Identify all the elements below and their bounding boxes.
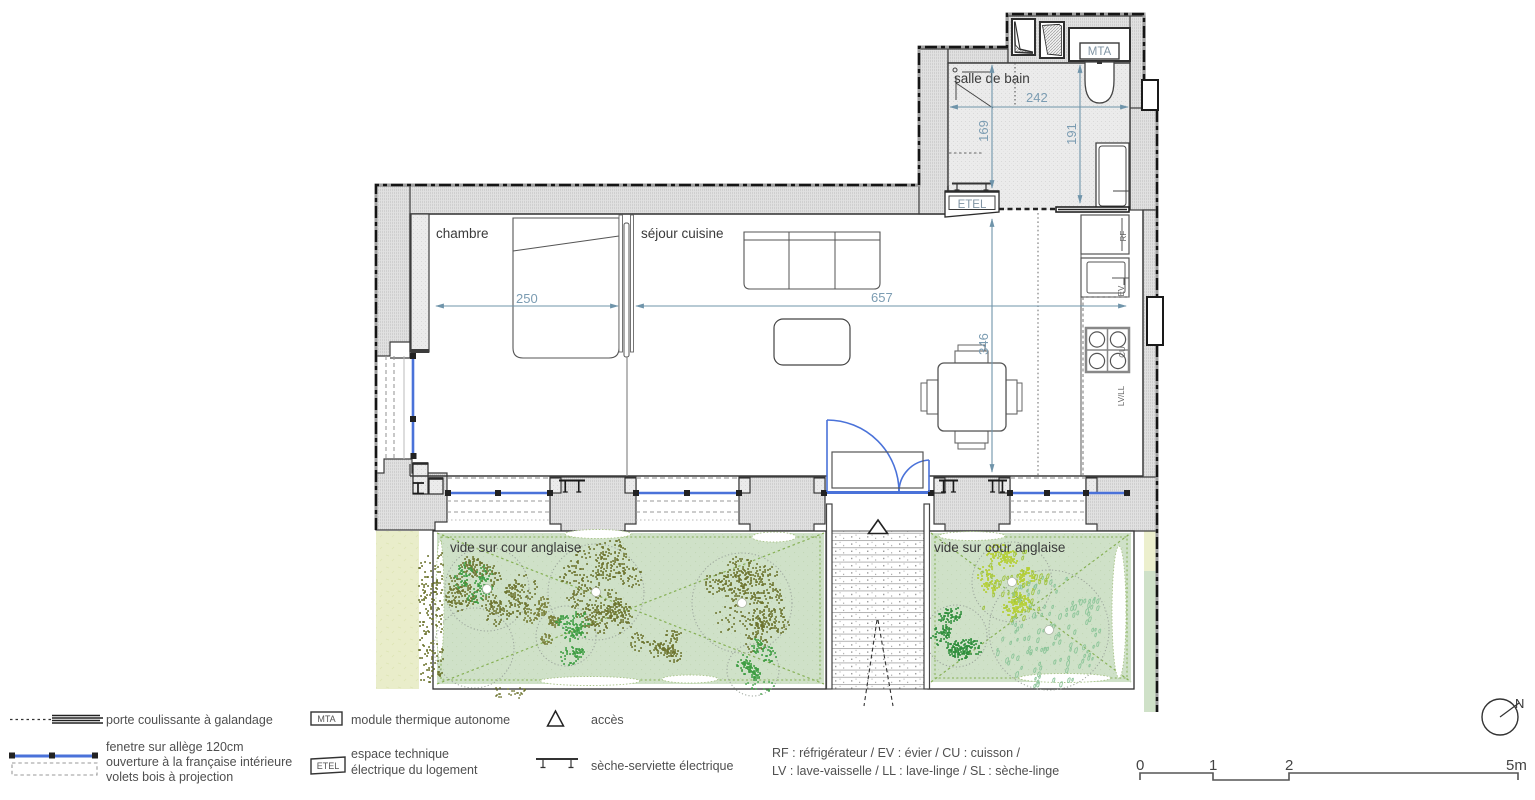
svg-text:électrique du logement: électrique du logement: [351, 763, 478, 777]
svg-text:0: 0: [1136, 757, 1144, 774]
svg-text:2: 2: [1285, 757, 1293, 774]
svg-text:MTA: MTA: [1088, 46, 1112, 58]
svg-text:vide sur cour anglaise: vide sur cour anglaise: [934, 540, 1065, 555]
svg-text:LV/LL: LV/LL: [1117, 385, 1126, 406]
svg-text:ouverture à la française intér: ouverture à la française intérieure: [106, 755, 292, 769]
svg-text:CU: CU: [1118, 346, 1127, 358]
svg-text:250: 250: [516, 291, 538, 306]
svg-text:ETEL: ETEL: [317, 761, 340, 771]
svg-text:169: 169: [976, 120, 991, 142]
svg-text:191: 191: [1064, 123, 1079, 145]
svg-text:module thermique autonome: module thermique autonome: [351, 713, 510, 727]
svg-text:N: N: [1515, 696, 1524, 711]
svg-text:sèche-serviette électrique: sèche-serviette électrique: [591, 759, 733, 773]
svg-text:MTA: MTA: [317, 714, 335, 724]
svg-text:RF: RF: [1119, 231, 1128, 242]
svg-text:LV : lave-vaisselle / LL : lav: LV : lave-vaisselle / LL : lave-linge / …: [772, 764, 1059, 778]
svg-text:RF : réfrigérateur / EV : évie: RF : réfrigérateur / EV : évier / CU : c…: [772, 746, 1021, 760]
svg-text:espace technique: espace technique: [351, 747, 449, 761]
svg-text:5m: 5m: [1506, 757, 1527, 774]
svg-text:EV: EV: [1117, 285, 1126, 296]
svg-text:346: 346: [976, 333, 991, 355]
svg-text:fenetre sur allège 120cm: fenetre sur allège 120cm: [106, 740, 244, 754]
svg-text:242: 242: [1026, 90, 1048, 105]
svg-text:accès: accès: [591, 713, 624, 727]
svg-text:chambre: chambre: [436, 226, 489, 241]
svg-text:volets bois à projection: volets bois à projection: [106, 770, 233, 784]
svg-text:vide sur cour anglaise: vide sur cour anglaise: [450, 540, 581, 555]
svg-text:porte coulissante à galandage: porte coulissante à galandage: [106, 713, 273, 727]
svg-text:657: 657: [871, 290, 893, 305]
svg-text:ETEL: ETEL: [958, 199, 987, 211]
svg-text:séjour cuisine: séjour cuisine: [641, 226, 724, 241]
svg-text:1: 1: [1209, 757, 1217, 774]
